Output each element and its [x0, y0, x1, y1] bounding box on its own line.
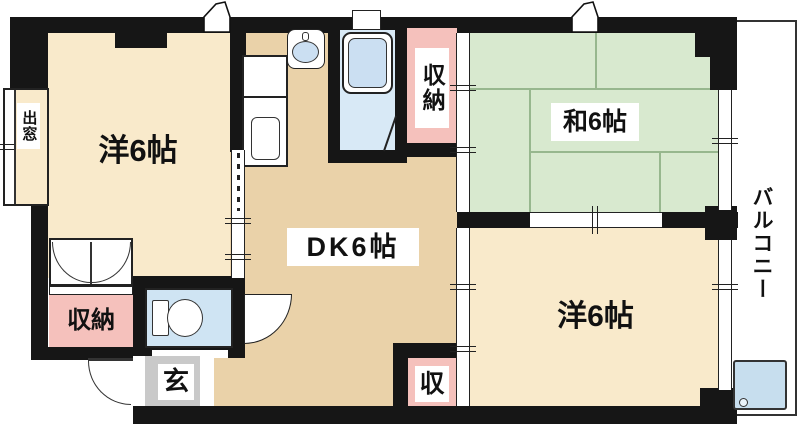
accordion-door-dashes — [237, 153, 240, 211]
bay-window-label: 出窓 — [17, 103, 40, 149]
washbasin-bowl — [292, 41, 319, 63]
accordion-door-tl-dk — [231, 150, 245, 278]
closet-bottom-left-label: 収納 — [52, 299, 130, 343]
vent-marker — [202, 1, 232, 33]
window-tick — [0, 144, 14, 150]
window-tick — [450, 346, 476, 352]
sliding-door-wa-yo — [530, 212, 662, 228]
dk-hall-patch — [212, 356, 232, 406]
room-western-top-left-label: 洋6帖 — [58, 130, 218, 172]
window-tick — [450, 284, 476, 290]
tatami-line — [531, 151, 718, 153]
washbasin-faucet-icon — [302, 32, 309, 41]
tatami-line — [659, 153, 661, 212]
room-western-bottom-right-label: 洋6帖 — [543, 296, 648, 338]
vent-marker — [570, 1, 600, 33]
fusuma-japanese-room — [456, 33, 470, 212]
floor-plan: バルコニー 収納 収 収納 玄 — [0, 0, 800, 424]
wall-ne-pillar — [695, 17, 737, 57]
wall-e-pillar — [705, 206, 737, 240]
window-tick — [712, 284, 738, 290]
kitchen-counter-divider — [244, 96, 286, 98]
washing-machine-pan — [733, 360, 787, 410]
wall-top-notch — [115, 33, 167, 48]
entry-door-arc — [88, 361, 131, 405]
wall-ne-step — [710, 57, 737, 90]
window-tick — [592, 206, 598, 234]
closet-door-arc-left — [52, 242, 91, 283]
closet-door-center-line — [90, 242, 92, 284]
closet-threshold — [49, 286, 133, 295]
entrance-label: 玄 — [158, 364, 194, 400]
toilet-bowl-icon — [167, 299, 203, 337]
washing-machine-drain-icon — [739, 398, 748, 407]
bathtub — [342, 32, 393, 94]
window-tick — [225, 254, 251, 260]
kitchen-sink — [251, 117, 280, 160]
window-tick — [712, 138, 738, 144]
window-western-balcony — [718, 240, 732, 390]
washbasin — [287, 29, 325, 69]
sliding-door-dk-western — [456, 228, 470, 406]
wall-wa-yo-left — [457, 212, 530, 228]
bathtub-inner — [348, 38, 387, 88]
wall-se-pillar — [700, 388, 737, 424]
wall-bottom — [133, 406, 737, 424]
window-tick — [225, 218, 251, 224]
entrance-gap-right — [200, 356, 214, 406]
kitchen-counter — [242, 55, 288, 167]
window-tick — [450, 147, 476, 153]
closet-top-label: 収納 — [415, 48, 449, 128]
balcony-label: バルコニー — [742, 148, 780, 338]
bath-vent-window — [352, 10, 381, 30]
tatami-line — [595, 33, 597, 89]
window-tick — [450, 85, 476, 91]
entrance-gap-left — [133, 356, 145, 406]
wall-left-lower — [31, 206, 48, 348]
closet-bottom-center-label: 収 — [415, 366, 449, 402]
room-japanese-label: 和6帖 — [551, 103, 639, 141]
window-japanese-balcony — [718, 90, 732, 210]
room-dk-label: DK6帖 — [287, 228, 419, 266]
wall-left-upper — [10, 33, 48, 88]
tatami-line — [470, 88, 718, 90]
closet-doors — [49, 238, 133, 286]
closet-door-arc-right — [92, 242, 131, 283]
